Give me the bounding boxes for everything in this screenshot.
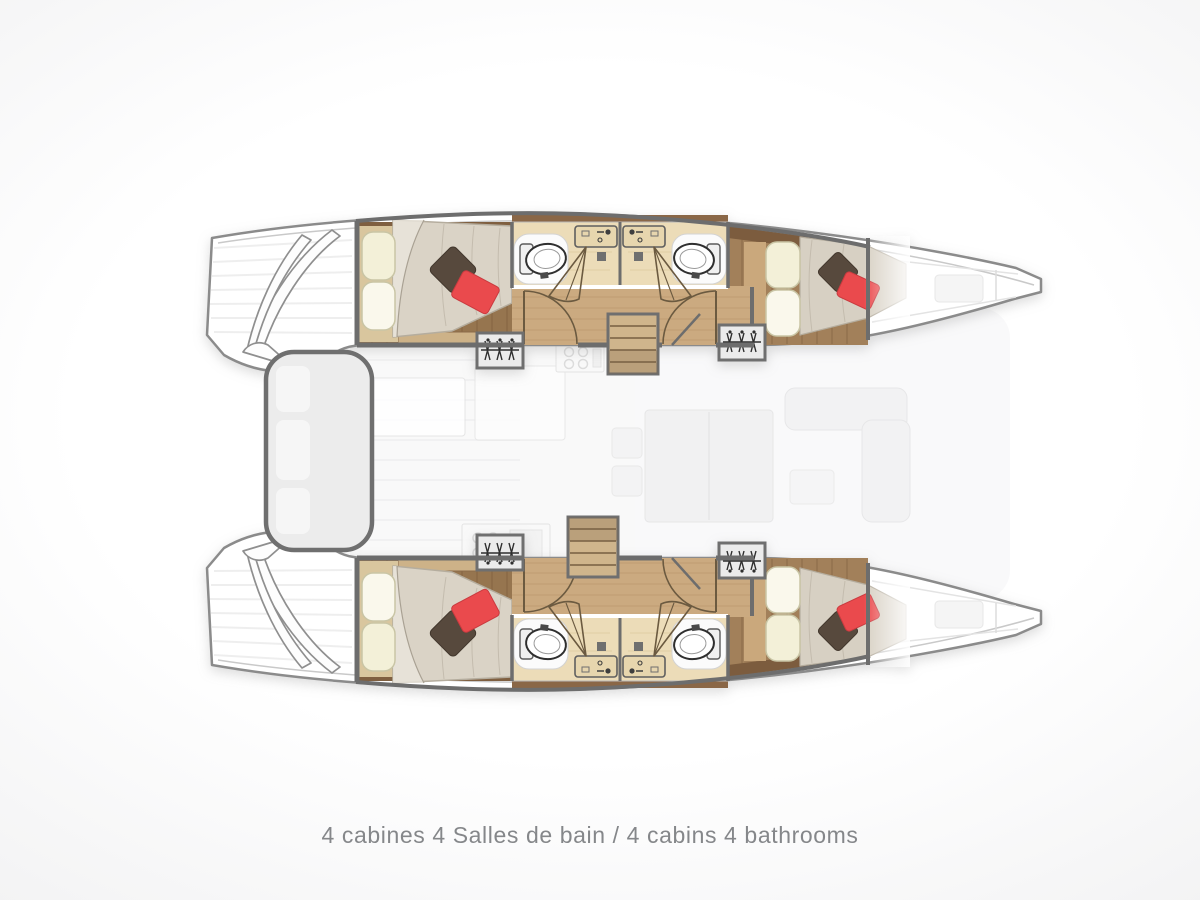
salon-chair xyxy=(612,466,642,496)
plan-caption: 4 cabines 4 Salles de bain / 4 cabins 4 … xyxy=(0,822,1180,849)
stairs-port xyxy=(608,314,658,374)
galley-stove-top xyxy=(556,344,604,372)
salon-sofa xyxy=(862,420,910,522)
boat-floor-plan-page: 4 cabines 4 Salles de bain / 4 cabins 4 … xyxy=(0,0,1200,900)
stairs-starboard xyxy=(568,517,618,577)
catamaran-plan-svg xyxy=(0,0,1200,900)
cockpit-bench xyxy=(266,352,372,550)
salon-chair xyxy=(612,428,642,458)
